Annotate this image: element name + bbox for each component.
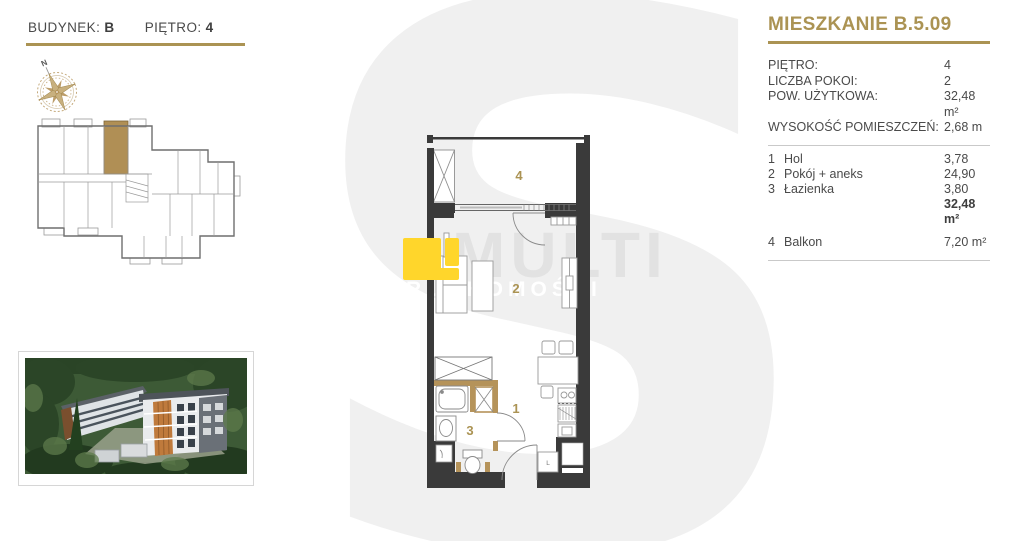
apartment-attributes: PIĘTRO: 4 LICZBA POKOI: 2 POW. UŻYTKOWA:…: [768, 58, 990, 136]
room-label-hol: 1: [512, 401, 519, 416]
attr-value: 32,48 m²: [944, 89, 990, 120]
pietro-pair: PIĘTRO: 4: [145, 20, 214, 35]
room-label-room: 2: [512, 281, 519, 296]
attr-label: POW. UŻYTKOWA:: [768, 89, 944, 120]
room-label-balcony: 4: [515, 168, 523, 183]
apartment-card-page: S NIERUCHOMOŚCI MULTI BUDYNEK: B PIĘTRO:…: [0, 0, 1024, 541]
attribute-row: WYSOKOŚĆ POMIESZCZEŃ: 2,68 m: [768, 120, 990, 136]
room-row: 1 Hol 3,78: [768, 152, 990, 167]
apartment-title: MIESZKANIE B.5.09: [768, 14, 990, 36]
attr-value: 2: [944, 74, 990, 90]
title-gold-rule: [768, 41, 990, 44]
room-name: Łazienka: [784, 182, 944, 197]
attr-label: WYSOKOŚĆ POMIESZCZEŃ:: [768, 120, 944, 136]
logo-block: [445, 238, 459, 266]
total-area-value: 32,48 m²: [944, 197, 990, 227]
divider: [768, 145, 990, 146]
compass-icon: N: [25, 58, 89, 122]
room-row: 2 Pokój + aneks 24,90: [768, 167, 990, 182]
room-name: Pokój + aneks: [784, 167, 944, 182]
balcony-row: 4 Balkon 7,20 m²: [768, 235, 990, 250]
pietro-value: 4: [206, 20, 214, 35]
l-box-label: L: [546, 460, 550, 467]
total-area-row: 32,48 m²: [768, 197, 990, 227]
attr-value: 2,68 m: [944, 120, 990, 136]
room-no: 1: [768, 152, 784, 167]
room-area: 3,80: [944, 182, 990, 197]
budynek-value: B: [104, 20, 114, 35]
highlighted-unit: [104, 121, 128, 174]
header-gold-rule: [26, 43, 245, 46]
attribute-row: PIĘTRO: 4: [768, 58, 990, 74]
room-area: 7,20 m²: [944, 235, 990, 250]
compass-north-label: N: [40, 58, 49, 69]
attribute-row: LICZBA POKOI: 2: [768, 74, 990, 90]
room-area: 24,90: [944, 167, 990, 182]
building-outline: [38, 126, 234, 258]
pietro-label: PIĘTRO:: [145, 20, 202, 35]
brand-logo-icon: [403, 238, 463, 282]
budynek-label: BUDYNEK:: [28, 20, 100, 35]
apartment-details-panel: MIESZKANIE B.5.09 PIĘTRO: 4 LICZBA POKOI…: [768, 14, 990, 261]
logo-block: [432, 268, 459, 280]
room-name: Balkon: [784, 235, 944, 250]
floor-locator-minimap: [30, 116, 242, 268]
building-floor-header: BUDYNEK: B PIĘTRO: 4: [28, 20, 240, 35]
room-row: 3 Łazienka 3,80: [768, 182, 990, 197]
apartment-floor-plan: L 4 2 3 1: [415, 125, 600, 495]
room-no: 4: [768, 235, 784, 250]
room-name: Hol: [784, 152, 944, 167]
attr-value: 4: [944, 58, 990, 74]
attr-label: PIĘTRO:: [768, 58, 944, 74]
room-area: 3,78: [944, 152, 990, 167]
room-no: 3: [768, 182, 784, 197]
room-area-list: 1 Hol 3,78 2 Pokój + aneks 24,90 3 Łazie…: [768, 152, 990, 250]
room-label-bath: 3: [466, 423, 473, 438]
room-no: 2: [768, 167, 784, 182]
attr-label: LICZBA POKOI:: [768, 74, 944, 90]
divider: [768, 260, 990, 261]
attribute-row: POW. UŻYTKOWA: 32,48 m²: [768, 89, 990, 120]
building-photo: [18, 351, 254, 486]
building-photo-render: [25, 358, 247, 474]
budynek-pair: BUDYNEK: B: [28, 20, 115, 35]
